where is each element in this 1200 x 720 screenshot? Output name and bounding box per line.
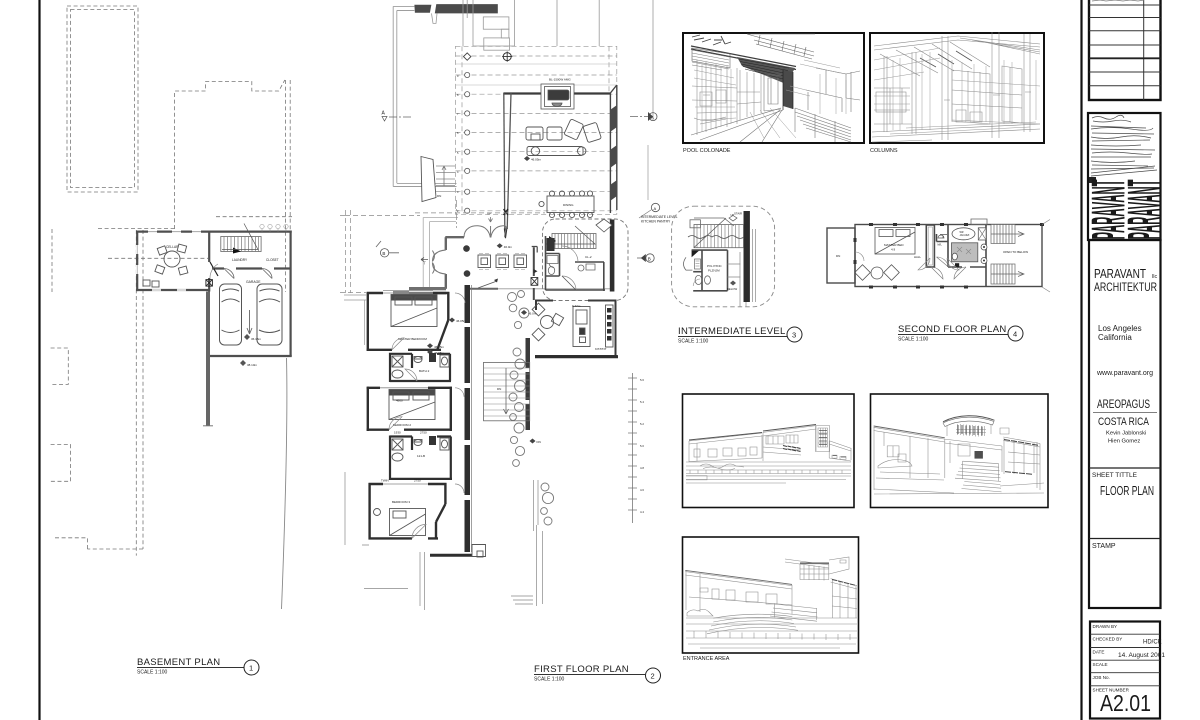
svg-text:PARAVANT: PARAVANT xyxy=(1118,179,1171,239)
svg-text:5.6: 5.6 xyxy=(640,378,644,382)
svg-text:121-B: 121-B xyxy=(417,454,425,458)
svg-text:A2.01: A2.01 xyxy=(1100,690,1151,716)
svg-text:14. August 2001: 14. August 2001 xyxy=(1118,652,1165,659)
svg-text:LAUNDRY: LAUNDRY xyxy=(232,258,248,262)
svg-text:Kevin Jablonski: Kevin Jablonski xyxy=(1106,431,1146,437)
svg-text:2750: 2750 xyxy=(414,479,421,483)
svg-text:SCALE 1:100: SCALE 1:100 xyxy=(534,677,565,683)
svg-text:FLOOR PLAN: FLOOR PLAN xyxy=(1100,484,1154,498)
svg-text:FIRST FLOOR PLAN: FIRST FLOOR PLAN xyxy=(534,664,629,675)
svg-text:SHEET TITTLE: SHEET TITTLE xyxy=(1092,472,1138,479)
svg-text:KITCHEN PANTRY: KITCHEN PANTRY xyxy=(641,220,671,224)
svg-text:DN: DN xyxy=(537,440,541,444)
svg-text:1930: 1930 xyxy=(394,431,401,435)
svg-text:COSTA RICA: COSTA RICA xyxy=(1098,416,1150,428)
svg-text:A: A xyxy=(654,206,657,211)
svg-text:MASTER BED: MASTER BED xyxy=(884,243,904,247)
svg-text:ƒ: ƒ xyxy=(424,261,426,265)
svg-text:GARAGE: GARAGE xyxy=(246,280,261,284)
svg-text:CHECKED BY: CHECKED BY xyxy=(1093,637,1123,642)
svg-text:BATH 2: BATH 2 xyxy=(419,369,430,373)
svg-text:California: California xyxy=(1098,333,1132,342)
svg-text:7: 7 xyxy=(457,112,459,116)
svg-text:4.6: 4.6 xyxy=(640,488,644,492)
svg-text:46.0m: 46.0m xyxy=(504,245,513,249)
svg-text:HALL: HALL xyxy=(914,255,921,259)
svg-text:COLUMNS: COLUMNS xyxy=(870,148,898,154)
svg-text:BEDROOM 3: BEDROOM 3 xyxy=(392,500,410,504)
svg-text:4.9: 4.9 xyxy=(891,248,896,252)
svg-text:INTERMEDIATE LEVEL: INTERMEDIATE LEVEL xyxy=(678,326,786,337)
svg-text:OPEN TO BELOW: OPEN TO BELOW xyxy=(1003,250,1028,254)
svg-text:AREOPAGUS: AREOPAGUS xyxy=(1097,399,1150,411)
svg-text:DRAWN BY: DRAWN BY xyxy=(1093,624,1118,629)
svg-text:A: A xyxy=(382,111,386,117)
svg-text:PXL PXNC: PXL PXNC xyxy=(707,264,723,268)
svg-text:HD/CK: HD/CK xyxy=(1143,640,1162,646)
svg-text:BELOW: BELOW xyxy=(727,287,737,291)
svg-text:CLOSET: CLOSET xyxy=(266,258,279,262)
svg-text:8: 8 xyxy=(457,93,459,97)
svg-text:TWIN: TWIN xyxy=(381,479,389,483)
svg-text:2750: 2750 xyxy=(420,431,427,435)
svg-text:POOL COLONADE: POOL COLONADE xyxy=(683,148,731,154)
svg-text:SCALE 1:100: SCALE 1:100 xyxy=(678,339,709,345)
svg-text:6: 6 xyxy=(457,131,459,135)
svg-text:4800: 4800 xyxy=(396,399,403,403)
svg-text:46.05m: 46.05m xyxy=(456,319,467,323)
svg-text:PLZNJM: PLZNJM xyxy=(708,269,720,273)
svg-text:PARAVANT: PARAVANT xyxy=(1094,267,1146,281)
svg-text:3: 3 xyxy=(792,331,796,340)
svg-text:Los Angeles: Los Angeles xyxy=(1098,324,1142,333)
svg-text:38.10m: 38.10m xyxy=(247,363,258,367)
svg-text:4.4: 4.4 xyxy=(640,510,644,514)
svg-text:DN: DN xyxy=(497,387,501,391)
svg-text:4: 4 xyxy=(1013,330,1017,339)
svg-text:5.4: 5.4 xyxy=(640,400,644,404)
svg-text:SCALE 1:100: SCALE 1:100 xyxy=(898,337,929,343)
svg-text:INTERMEDIATE LEVEL: INTERMEDIATE LEVEL xyxy=(641,215,678,219)
svg-text:JACUZZI: JACUZZI xyxy=(960,234,970,237)
svg-text:DATE: DATE xyxy=(1093,650,1105,655)
svg-text:STAIR: STAIR xyxy=(734,212,742,216)
svg-text:BASEMENT PLAN: BASEMENT PLAN xyxy=(137,657,220,668)
svg-text:BEDROOM 2: BEDROOM 2 xyxy=(393,423,411,427)
svg-text:ENTRANCE AREA: ENTRANCE AREA xyxy=(683,656,730,662)
svg-text:KIT/PNT: KIT/PNT xyxy=(595,347,607,351)
svg-text:CELLAR: CELLAR xyxy=(166,245,179,249)
svg-text:DN: DN xyxy=(836,254,840,258)
svg-text:4.8: 4.8 xyxy=(640,466,644,470)
svg-text:JOB No.: JOB No. xyxy=(1093,675,1110,680)
svg-text:1: 1 xyxy=(249,664,253,673)
svg-text:36.15m: 36.15m xyxy=(251,337,262,341)
svg-text:5.0: 5.0 xyxy=(640,444,644,448)
svg-text:SCALE 1:100: SCALE 1:100 xyxy=(137,670,168,676)
svg-text:Hien Gomez: Hien Gomez xyxy=(1108,439,1140,445)
svg-text:B: B xyxy=(648,256,651,261)
svg-text:BL-1500W AMG: BL-1500W AMG xyxy=(549,78,571,82)
svg-text:2: 2 xyxy=(651,672,655,681)
svg-text:SCALE: SCALE xyxy=(1093,662,1108,667)
svg-text:46.05m: 46.05m xyxy=(531,158,542,162)
svg-text:5.2: 5.2 xyxy=(640,422,644,426)
svg-text:9: 9 xyxy=(457,74,459,78)
svg-text:STAMP: STAMP xyxy=(1092,543,1116,550)
svg-text:B: B xyxy=(382,251,385,256)
svg-text:www.paravant.org: www.paravant.org xyxy=(1096,370,1153,377)
svg-text:DINING: DINING xyxy=(563,203,574,207)
svg-text:DN: DN xyxy=(437,194,441,198)
svg-text:SECOND FLOOR PLAN: SECOND FLOOR PLAN xyxy=(898,324,1007,335)
svg-text:9.77m: 9.77m xyxy=(572,304,581,308)
svg-text:UP: UP xyxy=(487,212,491,216)
svg-text:M/L: M/L xyxy=(938,243,943,247)
svg-text:ARCHITEKTUR: ARCHITEKTUR xyxy=(1094,280,1157,294)
svg-text:CL-2: CL-2 xyxy=(585,255,592,259)
